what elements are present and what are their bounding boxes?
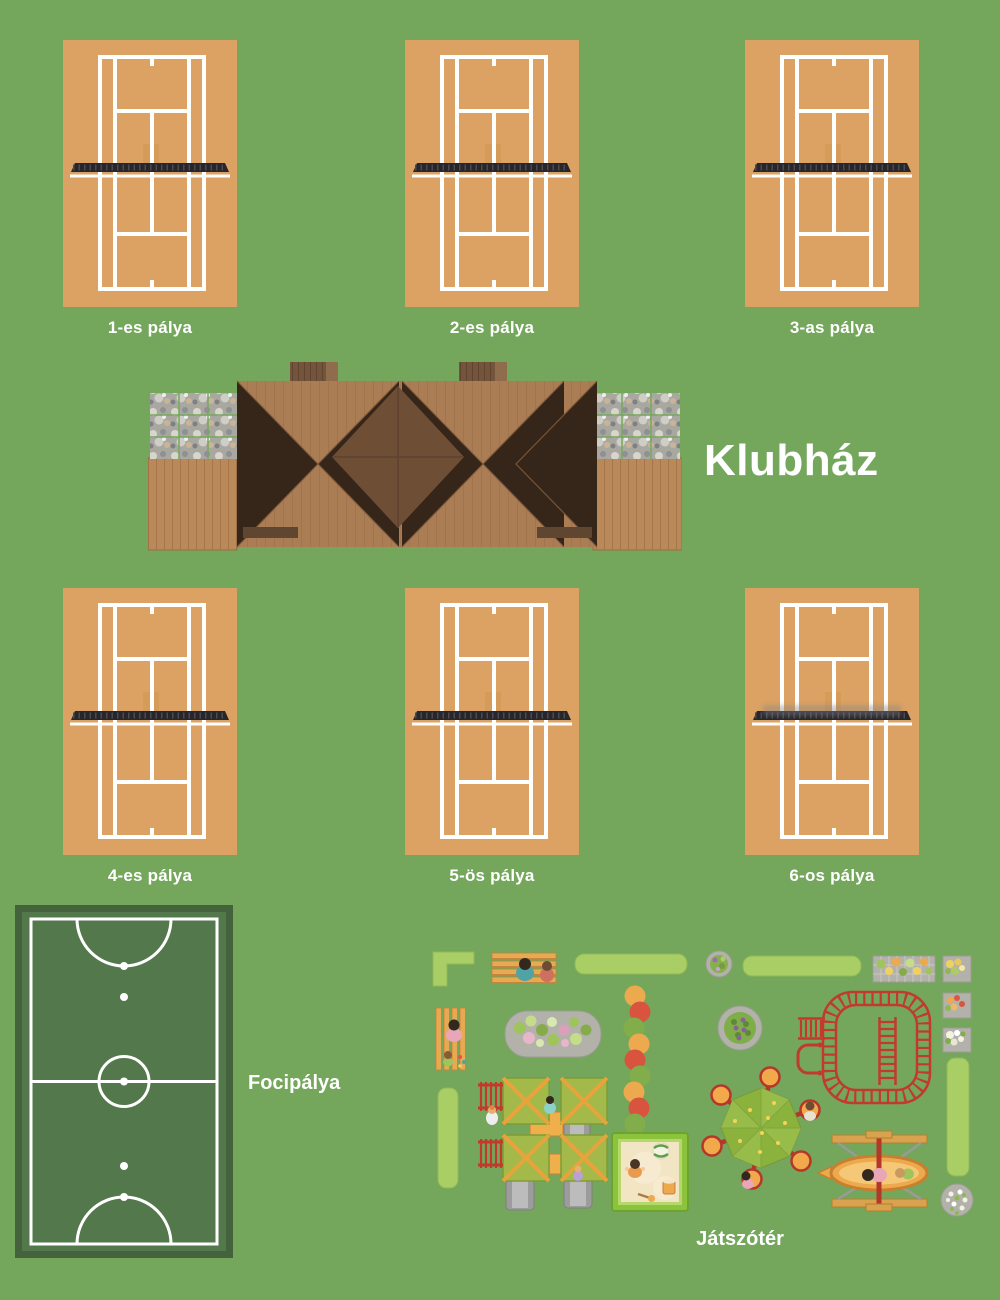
person — [449, 1020, 460, 1031]
clubhouse-roof — [237, 381, 597, 547]
football-field-graphic[interactable] — [15, 905, 233, 1258]
swing-boat — [818, 1131, 927, 1211]
tennis-court-1-label: 1-es pálya — [63, 318, 237, 338]
tennis-court-6[interactable]: 6-os pálya — [745, 588, 919, 886]
tennis-court-5[interactable]: 5-ös pálya — [405, 588, 579, 886]
carousel — [703, 1068, 820, 1190]
person — [519, 958, 531, 970]
football-field-label: Focipálya — [248, 1072, 340, 1095]
person — [542, 961, 552, 971]
picnic-table — [436, 1008, 466, 1070]
tennis-court-4-label: 4-es pálya — [63, 866, 237, 886]
playground-label: Játszótér — [660, 1228, 820, 1251]
climbing-structure — [478, 1078, 607, 1210]
playground-graphic[interactable] — [430, 938, 990, 1240]
sandbox — [612, 1133, 688, 1211]
stepping-balls — [624, 986, 651, 1135]
clubhouse-graphic[interactable] — [148, 362, 682, 562]
square-flower-beds — [943, 956, 971, 1052]
tennis-court-2[interactable]: 2-es pálya — [405, 40, 579, 338]
clubhouse-label: Klubház — [704, 436, 879, 486]
tennis-court-6-label: 6-os pálya — [745, 866, 919, 886]
clubhouse-deck-left — [148, 458, 237, 550]
tennis-court-3-label: 3-as pálya — [745, 318, 919, 338]
l-hedge — [433, 952, 474, 986]
climbing-track — [798, 992, 930, 1103]
tennis-court-4[interactable]: 4-es pálya — [63, 588, 237, 886]
clubhouse-deck-right — [593, 458, 682, 550]
clubhouse-pebble-path-left — [150, 393, 237, 459]
pitch-spots — [120, 962, 128, 1201]
child — [444, 1051, 452, 1059]
long-flower-bed — [873, 956, 935, 982]
park-bench — [492, 953, 556, 983]
net-shadow — [763, 705, 901, 716]
bucket — [663, 1179, 675, 1194]
tennis-court-5-label: 5-ös pálya — [405, 866, 579, 886]
tennis-court-graphic — [745, 40, 919, 307]
tennis-court-graphic — [405, 588, 579, 855]
tennis-court-graphic — [63, 40, 237, 307]
facility-map: 1-es pálya 2-es pálya 3-as pálya — [0, 0, 1000, 1300]
clubhouse-pebble-path-right — [593, 393, 680, 459]
tennis-court-graphic — [405, 40, 579, 307]
tennis-court-graphic — [63, 588, 237, 855]
tennis-court-graphic — [745, 588, 919, 855]
beach-ball — [653, 1143, 669, 1159]
tennis-court-2-label: 2-es pálya — [405, 318, 579, 338]
pebble-bush — [941, 1184, 973, 1216]
ladder — [478, 1082, 503, 1168]
tennis-court-1[interactable]: 1-es pálya — [63, 40, 237, 338]
round-flower-bed — [706, 951, 732, 977]
planter-bush — [718, 1006, 762, 1050]
rounded-flower-bed — [505, 1011, 601, 1057]
tennis-court-3[interactable]: 3-as pálya — [745, 40, 919, 338]
